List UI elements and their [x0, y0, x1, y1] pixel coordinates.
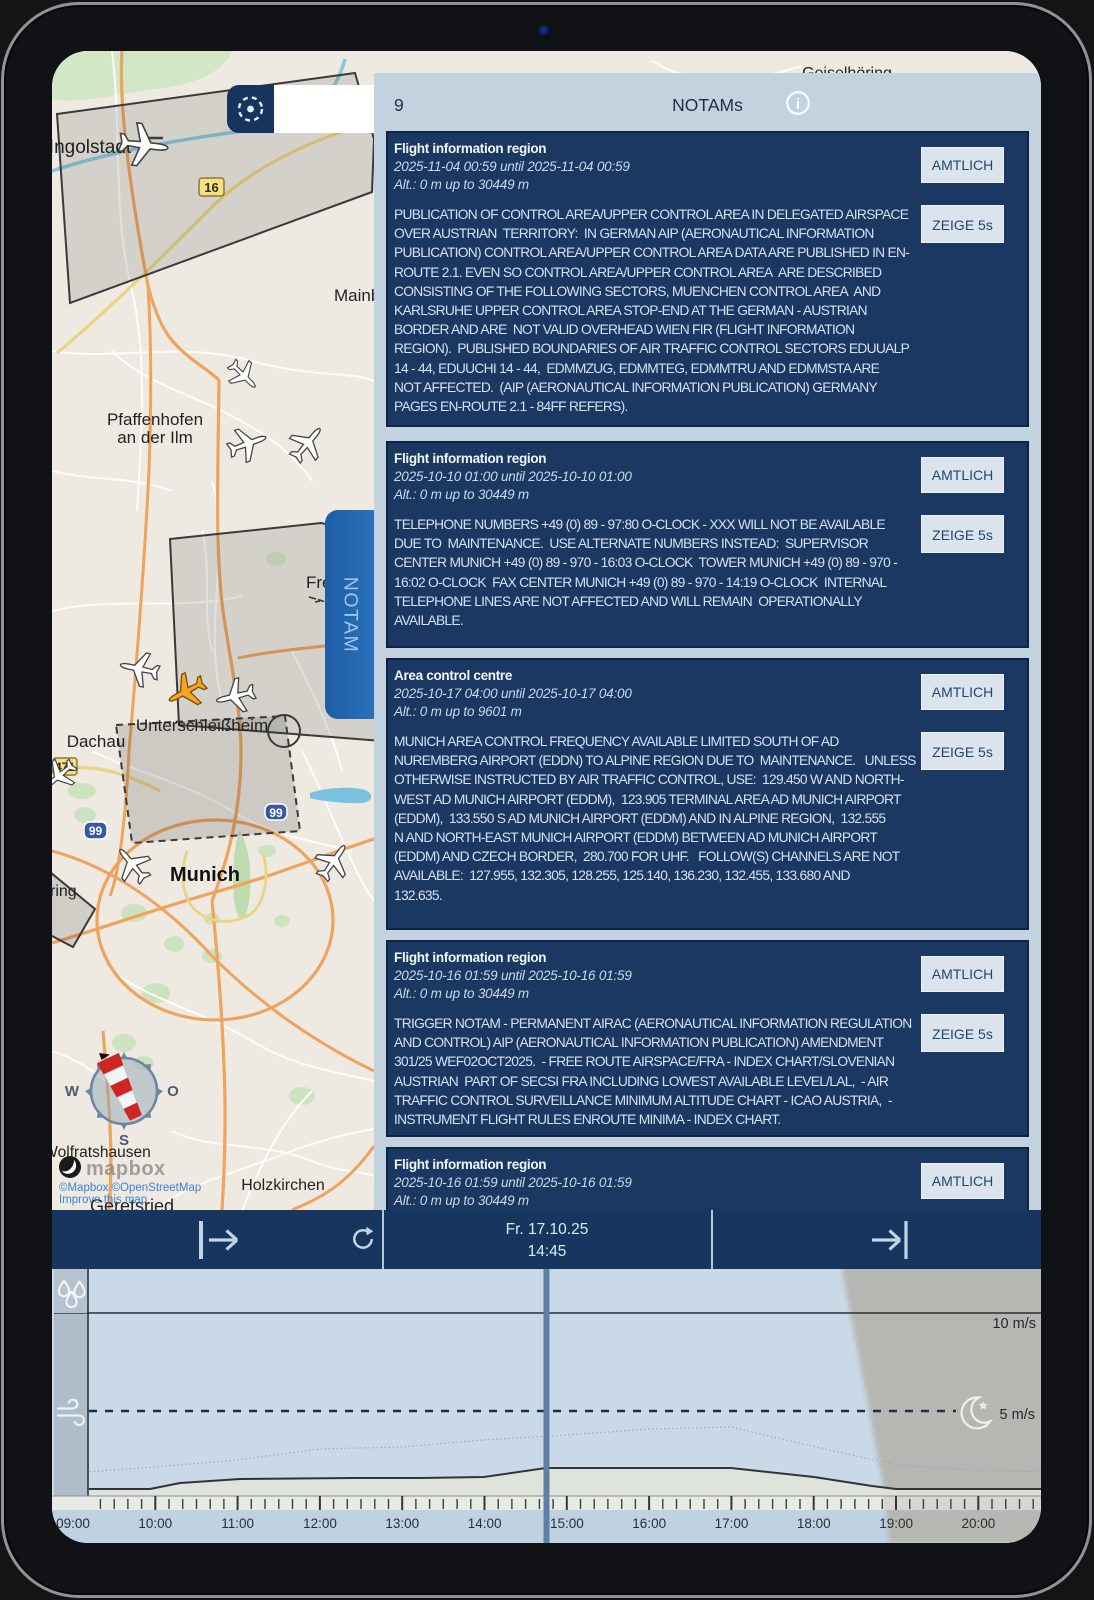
svg-text:20:00: 20:00 [962, 1516, 996, 1531]
svg-text:mapbox: mapbox [86, 1158, 166, 1180]
svg-text:i: i [796, 96, 800, 113]
svg-text:16:00: 16:00 [632, 1516, 666, 1531]
svg-text:Holzkirchen: Holzkirchen [241, 1177, 325, 1194]
svg-text:ring: ring [52, 883, 77, 900]
svg-text:©Mapbox ©OpenStreetMap: ©Mapbox ©OpenStreetMap [59, 1182, 201, 1194]
svg-text:09:00: 09:00 [56, 1516, 90, 1531]
svg-text:Unterschleißheim: Unterschleißheim [136, 716, 268, 735]
svg-text:15:00: 15:00 [550, 1516, 584, 1531]
svg-text:12:00: 12:00 [303, 1516, 337, 1531]
svg-text:S: S [119, 1132, 129, 1149]
svg-text:Improve this map: Improve this map [59, 1194, 147, 1206]
svg-text:16: 16 [204, 180, 218, 195]
svg-text:19:00: 19:00 [879, 1516, 913, 1531]
svg-text:99: 99 [269, 806, 283, 820]
svg-text:W: W [65, 1083, 80, 1100]
svg-text:Pfaffenhofen: Pfaffenhofen [107, 410, 203, 429]
svg-text:11:00: 11:00 [221, 1516, 254, 1531]
svg-text:10:00: 10:00 [138, 1516, 172, 1531]
svg-text:99: 99 [89, 824, 103, 838]
svg-text:O: O [167, 1083, 179, 1100]
svg-text:Dachau: Dachau [67, 732, 126, 751]
svg-text:13:00: 13:00 [385, 1516, 419, 1531]
svg-text:an der Ilm: an der Ilm [117, 428, 193, 447]
svg-text:17:00: 17:00 [715, 1516, 749, 1531]
svg-text:10 m/s: 10 m/s [992, 1316, 1036, 1332]
svg-text:Munich: Munich [170, 864, 240, 886]
svg-text:18:00: 18:00 [797, 1516, 831, 1531]
svg-text:14:00: 14:00 [468, 1516, 502, 1531]
svg-text:5 m/s: 5 m/s [1000, 1407, 1035, 1423]
